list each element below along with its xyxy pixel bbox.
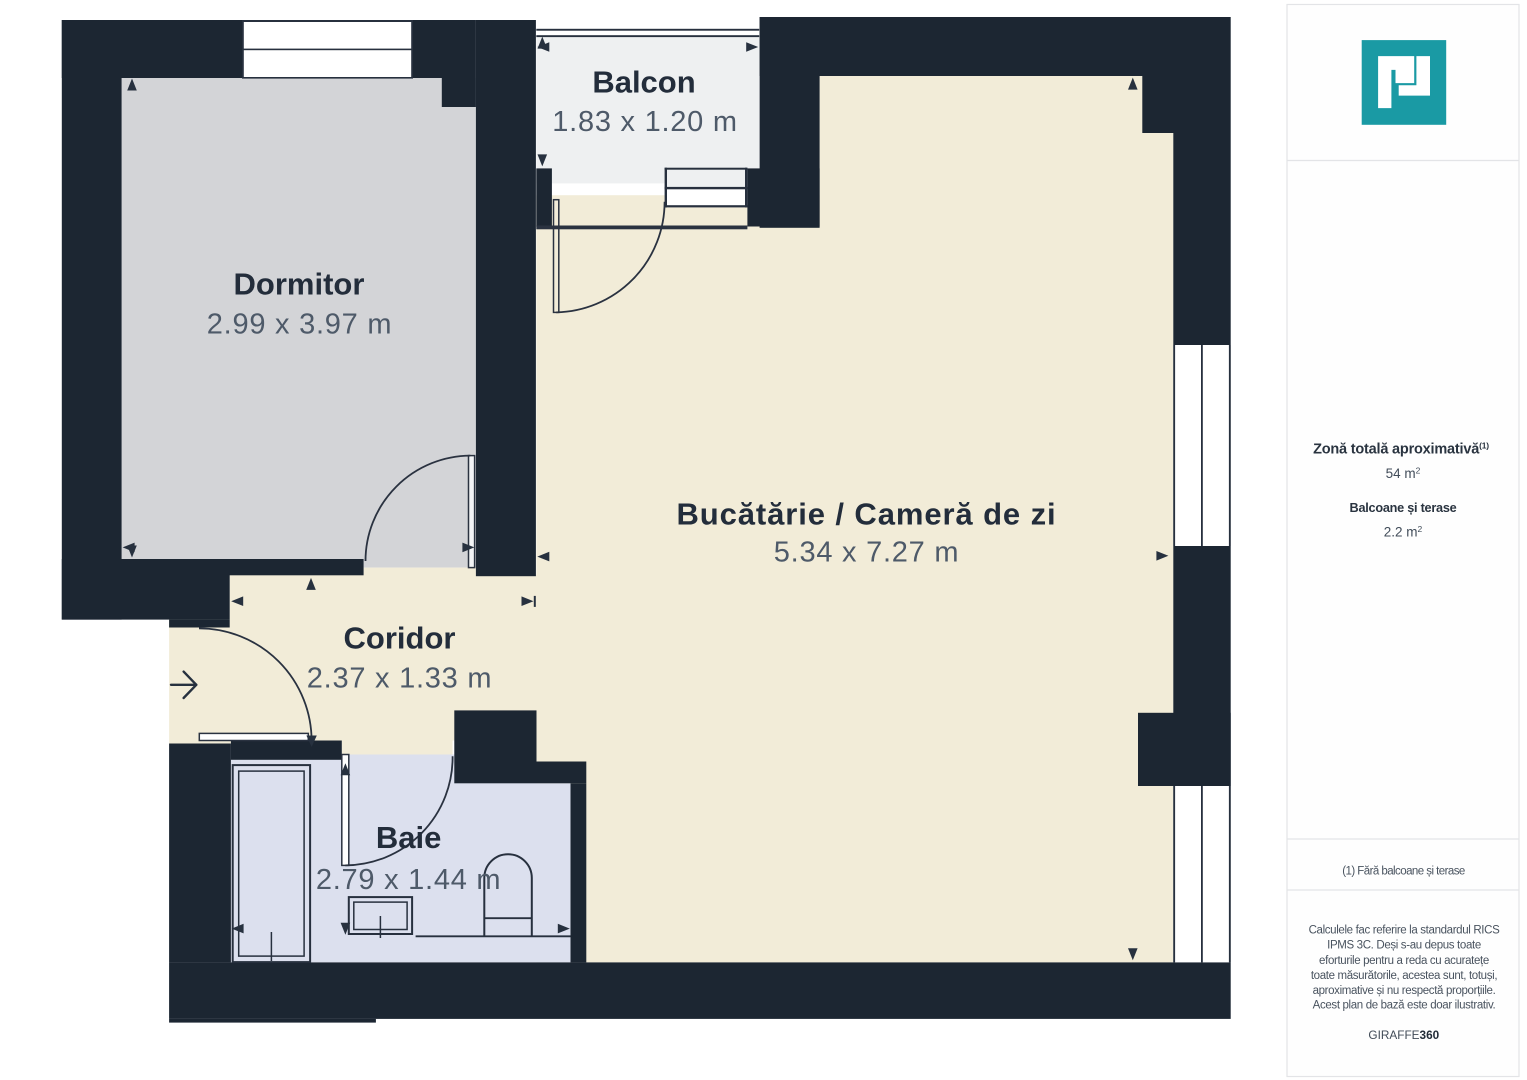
- svg-text:2.79 x 1.44 m: 2.79 x 1.44 m: [316, 864, 501, 896]
- svg-text:Bucătărie / Cameră de zi: Bucătărie / Cameră de zi: [677, 496, 1057, 531]
- svg-text:Acest plan de bază este doar i: Acest plan de bază este doar ilustrativ.: [1313, 1000, 1496, 1012]
- svg-text:Coridor: Coridor: [344, 621, 456, 656]
- svg-text:2.99 x 3.97 m: 2.99 x 3.97 m: [207, 309, 392, 341]
- svg-text:Balcon: Balcon: [592, 65, 695, 100]
- svg-text:Dormitor: Dormitor: [234, 267, 365, 302]
- svg-text:Calculele fac referire la stan: Calculele fac referire la standardul RIC…: [1309, 924, 1501, 936]
- svg-text:5.34 x 7.27 m: 5.34 x 7.27 m: [774, 537, 959, 569]
- svg-text:Balcoane și terase: Balcoane și terase: [1350, 501, 1457, 515]
- svg-text:Baie: Baie: [376, 820, 441, 855]
- svg-text:toate măsurătorile, acestea su: toate măsurătorile, acestea sunt, totuși…: [1311, 970, 1498, 982]
- svg-text:2.2 m2: 2.2 m2: [1384, 524, 1423, 540]
- svg-text:(1) Fără balcoane și terase: (1) Fără balcoane și terase: [1342, 866, 1465, 878]
- svg-text:54 m2: 54 m2: [1386, 466, 1421, 482]
- svg-text:2.37 x 1.33 m: 2.37 x 1.33 m: [307, 663, 492, 695]
- svg-text:1.83 x 1.20 m: 1.83 x 1.20 m: [552, 106, 737, 138]
- svg-text:Zonă totală aproximativă(1): Zonă totală aproximativă(1): [1313, 441, 1489, 458]
- svg-text:IPMS 3C. Deși s-au depus toate: IPMS 3C. Deși s-au depus toate: [1327, 940, 1481, 952]
- svg-text:GIRAFFE360: GIRAFFE360: [1368, 1028, 1439, 1042]
- svg-text:aproximative și nu respectă pr: aproximative și nu respectă proporțiile.: [1313, 985, 1496, 997]
- svg-text:eforturile pentru a reda cu ac: eforturile pentru a reda cu acuratețe: [1319, 955, 1489, 967]
